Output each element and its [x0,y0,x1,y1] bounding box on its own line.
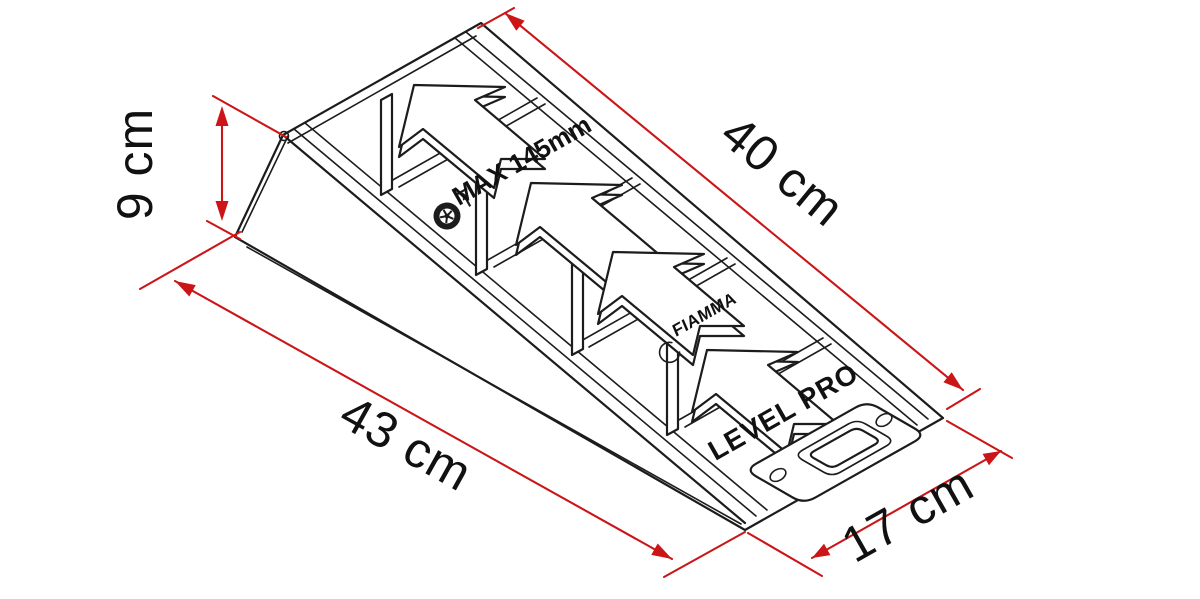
extension-line [140,232,240,289]
level-pro-dimensions-diagram: MAX 145mm FIAMMA LEVEL PRO 40 cm 9 cm 43… [0,0,1200,599]
extension-line [207,221,240,239]
dim-40cm-label: 40 cm [711,104,856,237]
extension-line [947,389,980,409]
arrowhead [216,106,229,126]
arrowhead [651,544,672,560]
dim-43cm-label: 43 cm [331,384,482,502]
ramp-drawing: MAX 145mm FIAMMA LEVEL PRO [235,23,943,530]
arrowhead [983,451,1001,465]
extension-line [947,421,1012,458]
arrowhead [216,201,229,221]
fin [381,94,392,195]
dim-9cm-label: 9 cm [107,108,163,220]
arrowhead [175,281,196,297]
extension-line [748,533,822,576]
diagram-canvas: MAX 145mm FIAMMA LEVEL PRO 40 cm 9 cm 43… [0,0,1200,599]
extension-line [664,532,745,577]
arrowhead [812,544,830,558]
